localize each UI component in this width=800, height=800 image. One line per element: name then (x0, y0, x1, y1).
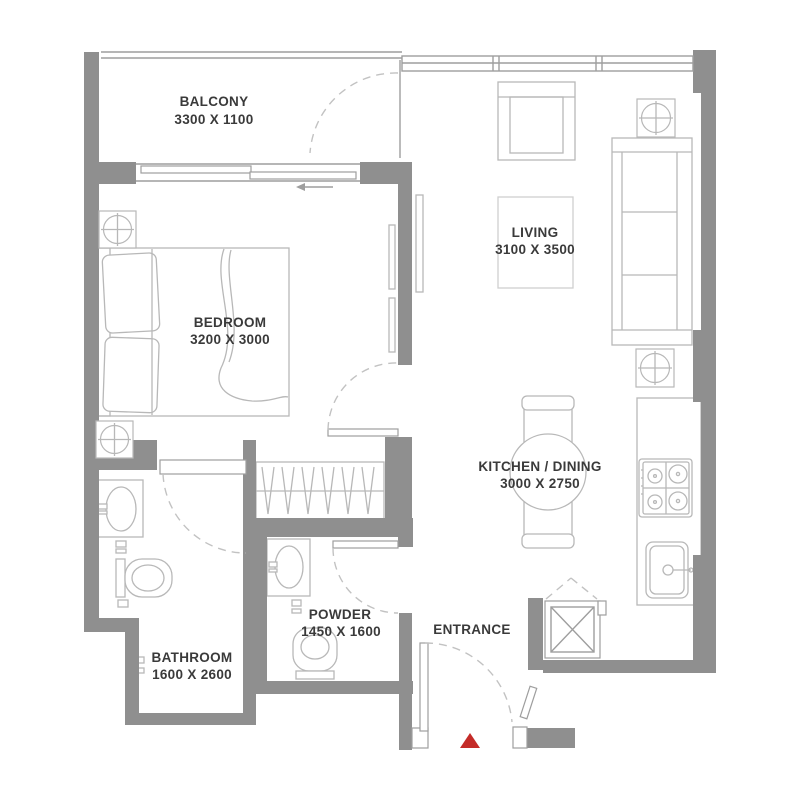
entry-door-swing (425, 643, 512, 722)
bedroom-dims: 3200 X 3000 (190, 332, 270, 347)
circle-cross-icon (96, 421, 133, 458)
circle-cross-icon (637, 99, 675, 137)
sliding-window-panel (141, 166, 251, 173)
powder-label: POWDER (309, 607, 372, 622)
balcony-label: BALCONY (180, 94, 249, 109)
entrance-label: ENTRANCE (433, 622, 510, 637)
powder-door-leaf (333, 541, 398, 548)
niche-door-leaf (520, 686, 537, 719)
kitchen-dining-label: KITCHEN / DINING (478, 459, 601, 474)
powder-dims: 1450 X 1600 (301, 624, 381, 639)
dining-chair (522, 396, 574, 410)
powder-door-swing (333, 548, 398, 613)
powder-faucet (269, 562, 277, 567)
pillow (103, 337, 160, 413)
bedroom-label: BEDROOM (194, 315, 267, 330)
pillow (102, 253, 160, 334)
bedroom-wall-panel (389, 298, 395, 352)
wall-accessory (292, 609, 301, 613)
bathroom-label: BATHROOM (152, 650, 233, 665)
wall-accessory (116, 541, 126, 547)
bathroom-faucet (98, 511, 107, 514)
window-mullions (402, 56, 693, 71)
entrance-marker-icon (460, 733, 480, 748)
tv-console (416, 195, 423, 292)
balcony-dims: 3300 X 1100 (174, 112, 253, 127)
toilet-tank (116, 559, 125, 597)
living-label: LIVING (512, 225, 559, 240)
wardrobe (256, 462, 384, 520)
floor-plan-page: BALCONY 3300 X 1100 LIVING 3100 X 3500 B… (0, 0, 800, 800)
floor-plan: BALCONY 3300 X 1100 LIVING 3100 X 3500 B… (0, 0, 800, 800)
balcony-parapet (101, 52, 402, 58)
bedroom-door-swing (328, 363, 398, 430)
bathroom-door-swing (163, 474, 246, 553)
circle-cross-icon (636, 349, 674, 387)
bedroom-door-leaf (328, 429, 398, 436)
bedroom-wall-panel (389, 225, 395, 289)
powder-toilet-tank (296, 671, 334, 679)
wall-accessory (116, 549, 126, 553)
entry-door-leaf (420, 643, 428, 731)
entry-door-frame (513, 727, 527, 748)
bathroom-door-leaf (160, 460, 246, 474)
balcony-door-swing (310, 73, 398, 153)
faucet (663, 565, 673, 575)
living-dims: 3100 X 3500 (495, 242, 575, 257)
circle-cross-icon (99, 211, 136, 248)
wall-accessory (118, 600, 128, 607)
sofa (612, 138, 692, 345)
slide-arrow-head (296, 183, 305, 191)
kitchen-dining-dims: 3000 X 2750 (500, 476, 580, 491)
powder-faucet (269, 569, 277, 572)
wall-accessory (292, 600, 301, 606)
dining-chair (522, 534, 574, 548)
shaft-side-frame (598, 601, 606, 615)
kitchen-fixtures (637, 398, 701, 605)
shaft-door-swing (546, 578, 597, 599)
sliding-window-panel (250, 172, 356, 179)
bathroom-faucet (98, 504, 107, 509)
bathroom-dims: 1600 X 2600 (152, 667, 232, 682)
